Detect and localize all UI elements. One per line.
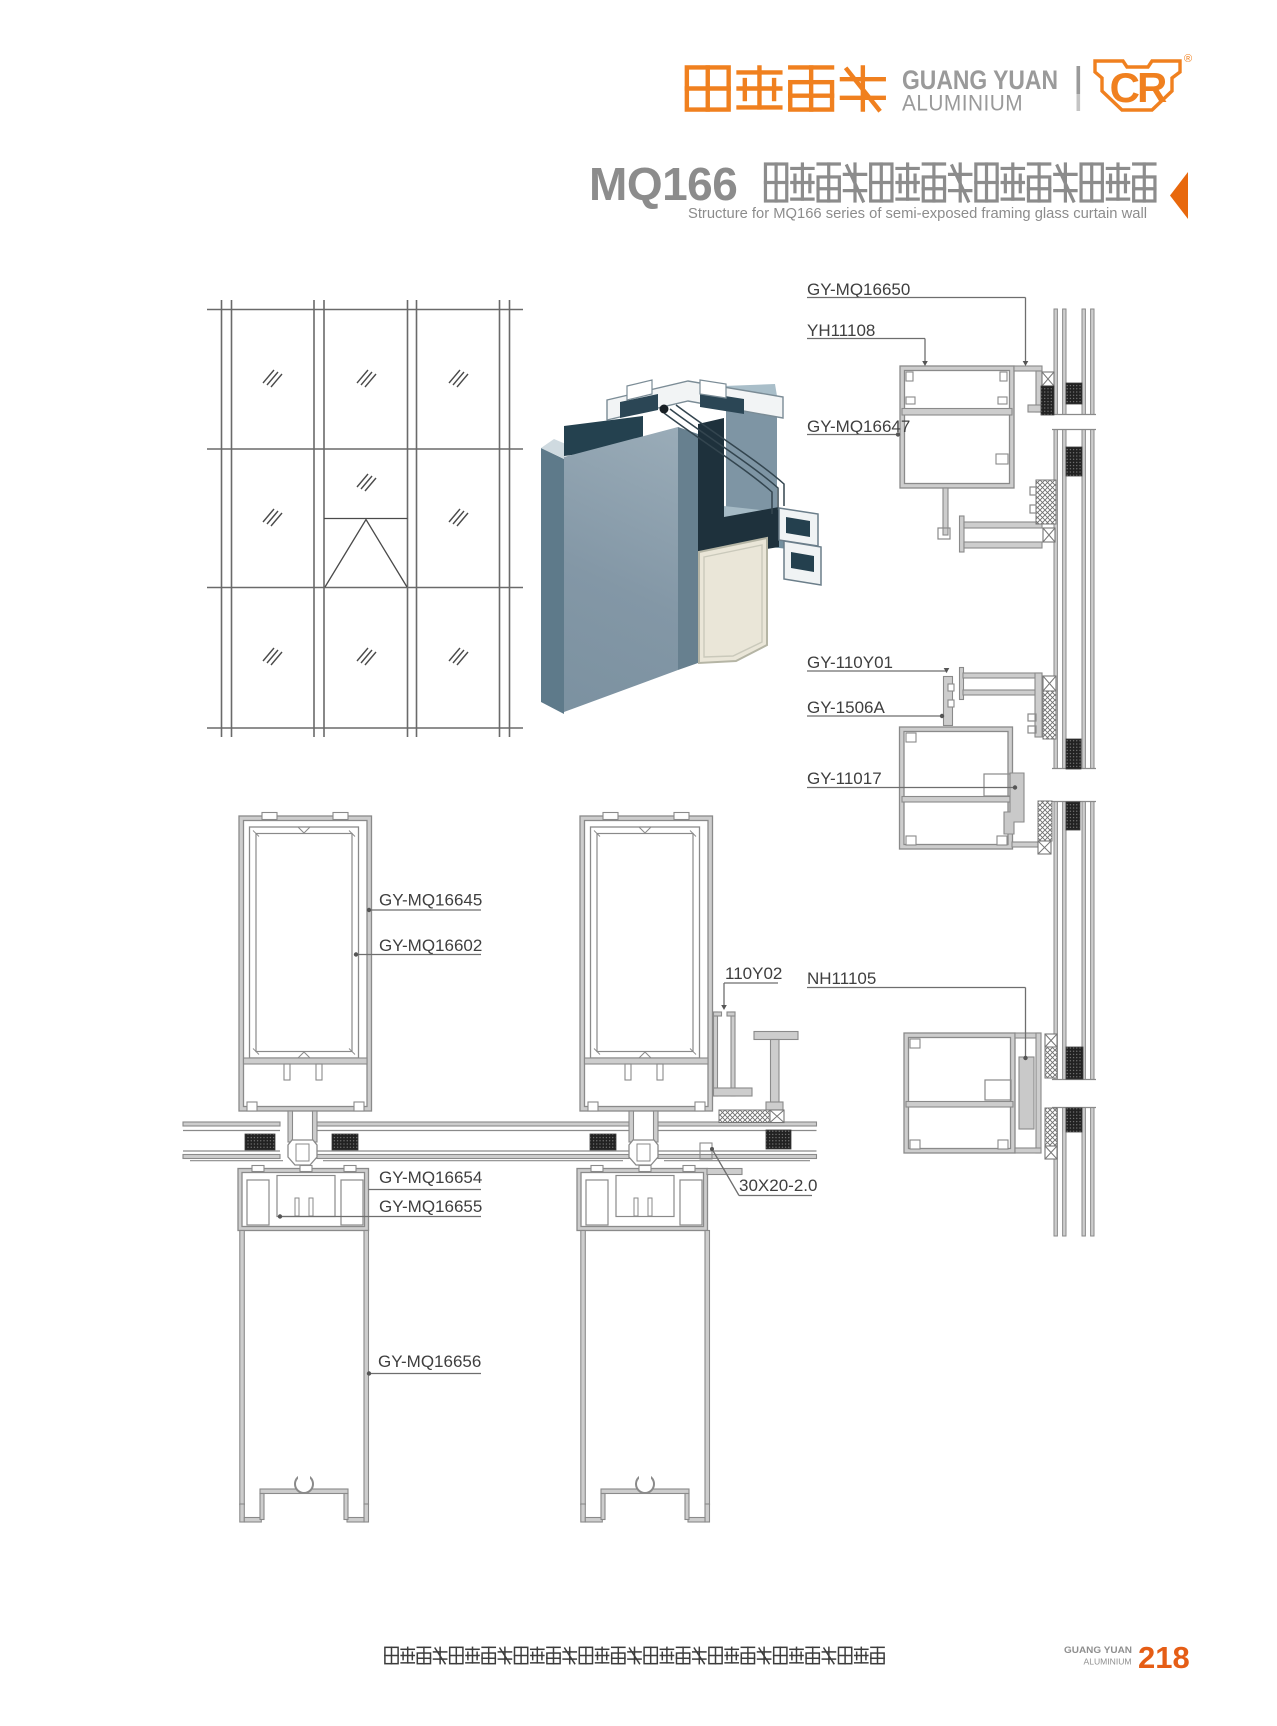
svg-text:GY-MQ16656: GY-MQ16656	[378, 1352, 481, 1371]
svg-text:NH11105: NH11105	[807, 969, 876, 988]
svg-text:GY-11017: GY-11017	[807, 769, 882, 788]
svg-text:MQ166: MQ166	[589, 158, 737, 210]
svg-text:GY-MQ16654: GY-MQ16654	[379, 1168, 482, 1187]
svg-text:218: 218	[1138, 1640, 1190, 1675]
svg-text:GY-MQ16602: GY-MQ16602	[379, 936, 482, 955]
svg-text:GY-1506A: GY-1506A	[807, 698, 885, 717]
svg-text:CR: CR	[1110, 64, 1167, 111]
svg-text:GY-110Y01: GY-110Y01	[807, 653, 893, 672]
svg-text:YH11108: YH11108	[807, 321, 875, 340]
svg-text:GY-MQ16647: GY-MQ16647	[807, 417, 910, 436]
svg-text:GUANG YUAN: GUANG YUAN	[1064, 1645, 1132, 1656]
svg-text:GY-MQ16655: GY-MQ16655	[379, 1197, 482, 1216]
svg-text:®: ®	[1184, 53, 1192, 65]
svg-text:110Y02: 110Y02	[725, 964, 782, 983]
svg-text:ALUMINIUM: ALUMINIUM	[902, 91, 1023, 116]
svg-text:30X20-2.0: 30X20-2.0	[739, 1176, 817, 1195]
svg-text:GY-MQ16650: GY-MQ16650	[807, 280, 910, 299]
svg-text:GY-MQ16645: GY-MQ16645	[379, 891, 482, 910]
svg-text:ALUMINIUM: ALUMINIUM	[1084, 1657, 1132, 1667]
svg-text:Structure for MQ166 series of: Structure for MQ166 series of semi-expos…	[688, 206, 1147, 222]
